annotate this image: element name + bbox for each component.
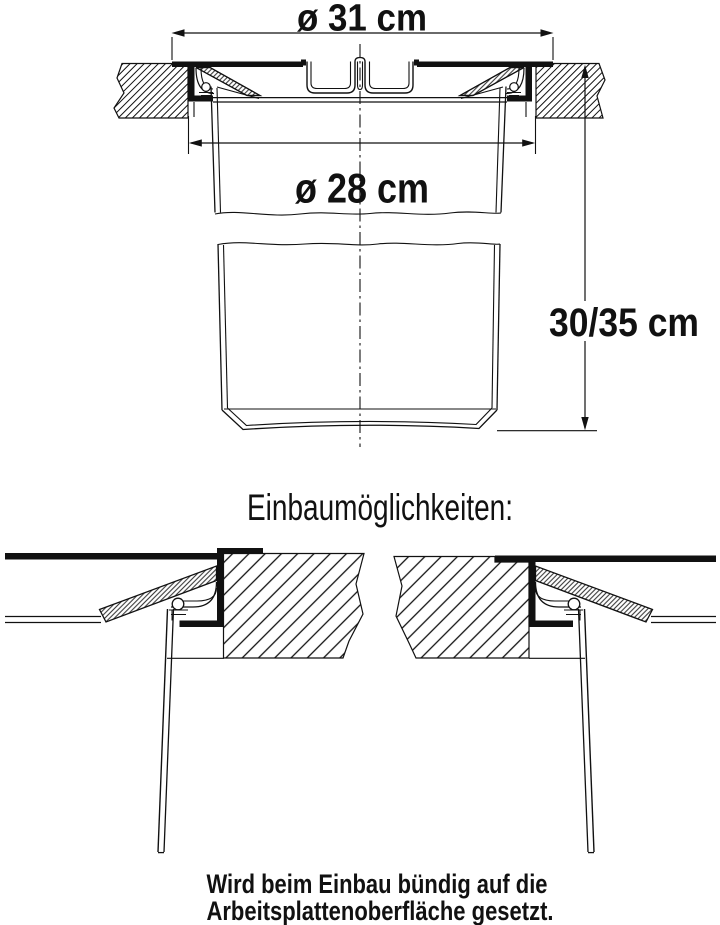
installation-detail-right <box>394 557 716 853</box>
arrowhead-right <box>522 139 535 146</box>
frame-underside-lines <box>651 617 716 623</box>
installation-options-figure <box>5 548 716 853</box>
depth-label: 30/35 cm <box>549 301 699 345</box>
break-line-upper <box>215 212 501 215</box>
countertop-section-left <box>114 64 194 119</box>
countertop-section-right <box>526 64 605 119</box>
rim-diameter-label: ø 31 cm <box>297 0 427 40</box>
opening-diameter-label: ø 28 cm <box>295 165 429 212</box>
seal-bead <box>568 598 580 610</box>
frame-underside-lines <box>5 617 101 623</box>
arrowhead-down <box>581 417 588 430</box>
bucket-lower-section <box>218 243 500 430</box>
caption-line-2: Arbeitsplattenoberfläche gesetzt. <box>207 896 554 925</box>
cross-section-figure: ø 31 cm ø 28 cm 30/35 cm <box>114 0 704 447</box>
dimension-depth: 30/35 cm <box>497 65 704 431</box>
technical-drawing: ø 31 cm ø 28 cm 30/35 cm Einbaumöglichke… <box>0 0 720 925</box>
diagram-page: ø 31 cm ø 28 cm 30/35 cm Einbaumöglichke… <box>0 0 720 925</box>
arrowhead-right <box>541 29 554 36</box>
countertop-block <box>224 554 365 659</box>
dimension-opening-diameter: ø 28 cm <box>189 116 536 212</box>
arrowhead-left <box>189 139 202 146</box>
countertop-block <box>394 557 529 659</box>
arrowhead-left <box>172 29 185 36</box>
installation-caption: Wird beim Einbau bündig auf die Arbeitsp… <box>207 869 554 925</box>
dimension-rim-diameter: ø 31 cm <box>172 0 554 60</box>
break-line-lower <box>218 243 500 245</box>
installation-heading: Einbaumöglichkeiten: <box>247 487 513 528</box>
caption-line-1: Wird beim Einbau bündig auf die <box>207 869 548 899</box>
seal-bead <box>172 598 184 610</box>
installation-detail-left <box>5 548 364 853</box>
